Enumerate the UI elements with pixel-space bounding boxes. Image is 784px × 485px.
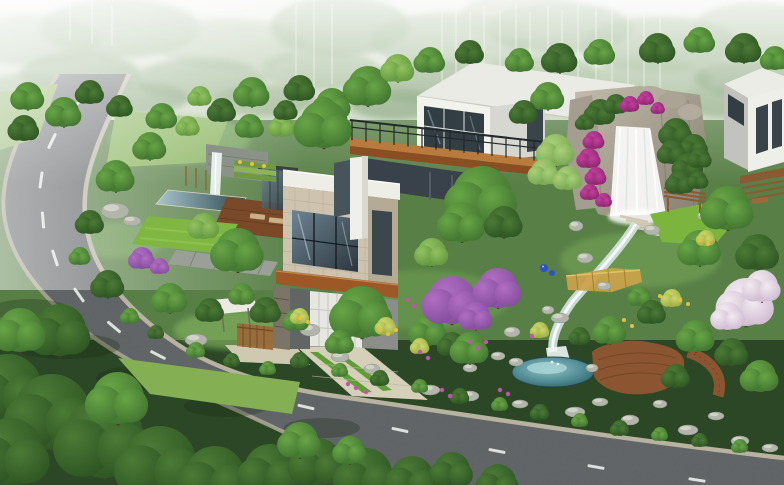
- neighbor-window: [772, 99, 782, 149]
- boulder: [644, 225, 660, 235]
- flower: [394, 328, 398, 332]
- flower: [406, 298, 410, 302]
- rendered-image: Aerial architectural rendering: modern w…: [0, 0, 784, 485]
- flower: [426, 356, 430, 360]
- flower: [298, 316, 302, 320]
- boulder: [101, 203, 129, 219]
- flower: [678, 298, 682, 302]
- flower: [378, 328, 382, 332]
- boulder: [592, 398, 608, 406]
- flower: [658, 294, 662, 298]
- flower: [262, 164, 266, 168]
- villa-landscape-rendering: Aerial architectural rendering: modern w…: [0, 0, 784, 485]
- flower: [306, 320, 310, 324]
- blue-garden-orb: [540, 264, 548, 272]
- boulder: [569, 221, 583, 231]
- flower: [354, 386, 358, 390]
- flower: [238, 160, 242, 164]
- boulder: [509, 358, 523, 366]
- flower: [364, 390, 368, 394]
- flower: [498, 388, 502, 392]
- flower: [418, 350, 422, 354]
- flower: [412, 304, 416, 308]
- boulder: [597, 282, 611, 290]
- flower: [468, 340, 472, 344]
- boulder: [586, 364, 598, 372]
- flower: [622, 318, 626, 322]
- flower: [630, 324, 634, 328]
- boulder: [577, 253, 593, 263]
- flower: [386, 332, 390, 336]
- flower: [506, 392, 510, 396]
- flower: [440, 388, 444, 392]
- blue-garden-orb: [549, 270, 555, 276]
- boulder: [653, 400, 667, 408]
- flower: [346, 382, 350, 386]
- flower: [484, 340, 488, 344]
- boulder: [123, 216, 141, 226]
- flower: [448, 394, 452, 398]
- pond-reflection: [527, 362, 567, 374]
- flower: [250, 162, 254, 166]
- boulder: [504, 327, 520, 337]
- stair-glass: [334, 160, 350, 217]
- boulder: [512, 400, 528, 408]
- flower: [706, 242, 710, 246]
- pillar-shade: [362, 156, 368, 239]
- neighbor-front: [724, 84, 748, 170]
- boulder: [678, 425, 698, 435]
- boulder: [491, 352, 505, 360]
- boulder: [678, 104, 702, 120]
- boulder: [551, 313, 569, 323]
- flower: [476, 346, 480, 350]
- neighbor-window: [756, 104, 768, 154]
- curtain-wall-window: [292, 210, 358, 272]
- boulder: [542, 306, 554, 314]
- boulder: [708, 412, 724, 420]
- side-window: [372, 210, 392, 276]
- flower: [530, 334, 534, 338]
- flower: [698, 238, 702, 242]
- boulder: [463, 364, 477, 372]
- flower: [686, 302, 690, 306]
- boulder: [762, 444, 778, 452]
